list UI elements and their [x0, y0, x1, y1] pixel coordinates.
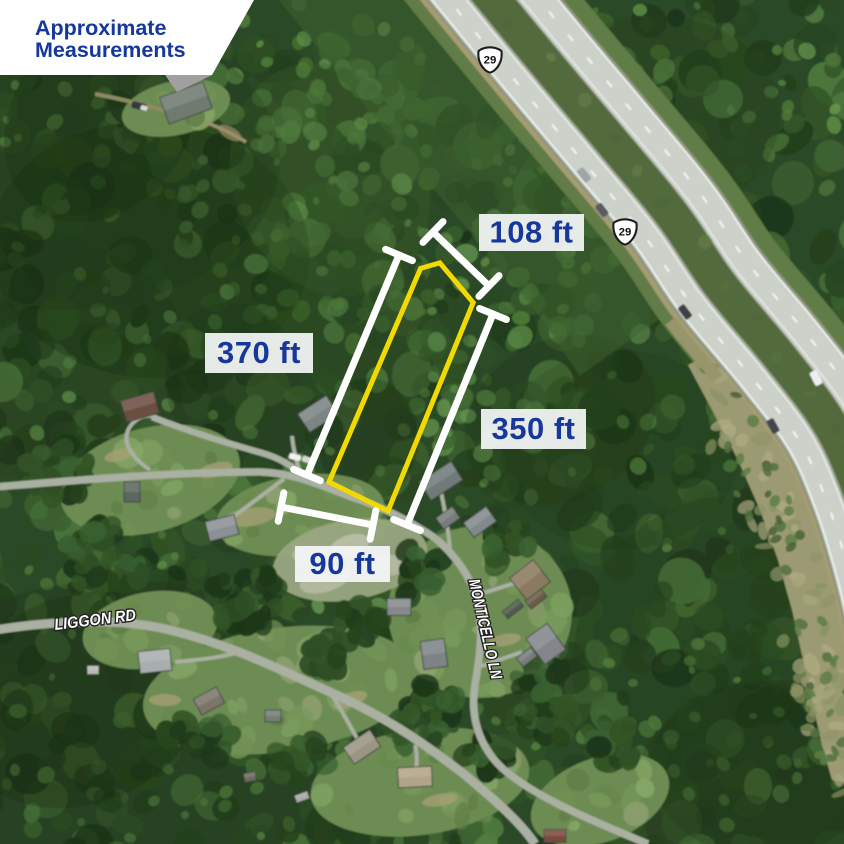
svg-text:350 ft: 350 ft: [492, 411, 576, 446]
svg-text:370 ft: 370 ft: [217, 335, 301, 370]
svg-text:Approximate: Approximate: [35, 16, 166, 40]
svg-text:Measurements: Measurements: [35, 38, 186, 62]
svg-text:29: 29: [484, 54, 497, 66]
svg-text:29: 29: [619, 226, 632, 238]
svg-text:90 ft: 90 ft: [309, 546, 375, 581]
svg-text:108 ft: 108 ft: [490, 215, 574, 250]
